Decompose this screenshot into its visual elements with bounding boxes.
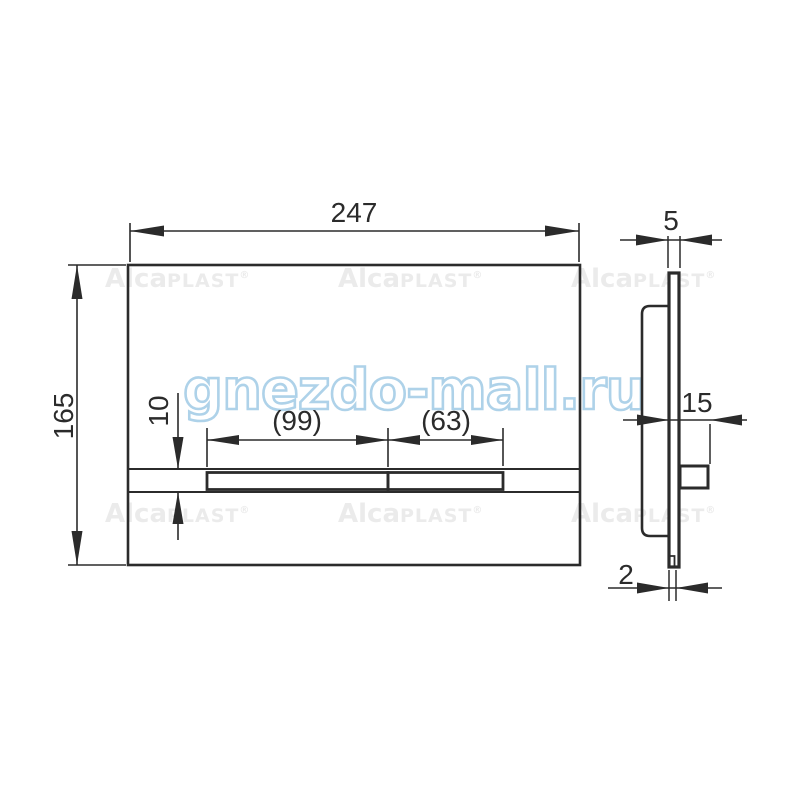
- dimension-rail: 2: [608, 559, 722, 601]
- dimension-band-height: 10: [143, 393, 184, 540]
- dimension-buttons: (99) (63): [207, 405, 503, 467]
- arrowhead-up-icon: [173, 492, 184, 524]
- dimension-label-band-height: 10: [143, 395, 174, 426]
- dimension-width: 247: [130, 197, 579, 262]
- drawing-svg: 247 165 (99) (63): [0, 0, 800, 800]
- arrowhead-left-icon: [676, 583, 708, 594]
- arrowhead-right-icon: [637, 583, 669, 594]
- dimension-label-button-small: (63): [421, 405, 471, 436]
- arrowhead-down-icon: [72, 531, 83, 565]
- arrowhead-right-icon: [356, 435, 388, 445]
- front-view: [128, 265, 580, 565]
- arrowhead-left-icon: [710, 415, 742, 426]
- dimension-label-thickness: 5: [663, 205, 679, 236]
- flush-button-small: [388, 473, 503, 490]
- arrowhead-left-icon: [680, 235, 712, 246]
- arrowhead-left-icon: [130, 226, 164, 237]
- dimension-thickness: 5: [620, 205, 722, 268]
- dimension-height: 165: [48, 265, 126, 565]
- arrowhead-left-icon: [388, 435, 420, 445]
- arrowhead-left-icon: [207, 435, 239, 445]
- dimension-label-rail: 2: [618, 559, 634, 590]
- dimension-label-depth: 15: [681, 387, 712, 418]
- arrowhead-down-icon: [173, 437, 184, 469]
- button-profile: [680, 466, 708, 488]
- flush-button-large: [207, 473, 388, 490]
- arrowhead-right-icon: [545, 226, 579, 237]
- dimension-label-width: 247: [331, 197, 378, 228]
- arrowhead-right-icon: [637, 415, 669, 426]
- arrowhead-up-icon: [72, 265, 83, 299]
- arrowhead-right-icon: [636, 235, 668, 246]
- technical-drawing-canvas: AlcaPLAST® AlcaPLAST® AlcaPLAST® AlcaPLA…: [0, 0, 800, 800]
- plate-outline: [128, 265, 580, 565]
- arrowhead-right-icon: [471, 435, 503, 445]
- dimension-label-button-large: (99): [272, 405, 322, 436]
- dimension-label-height: 165: [48, 393, 79, 440]
